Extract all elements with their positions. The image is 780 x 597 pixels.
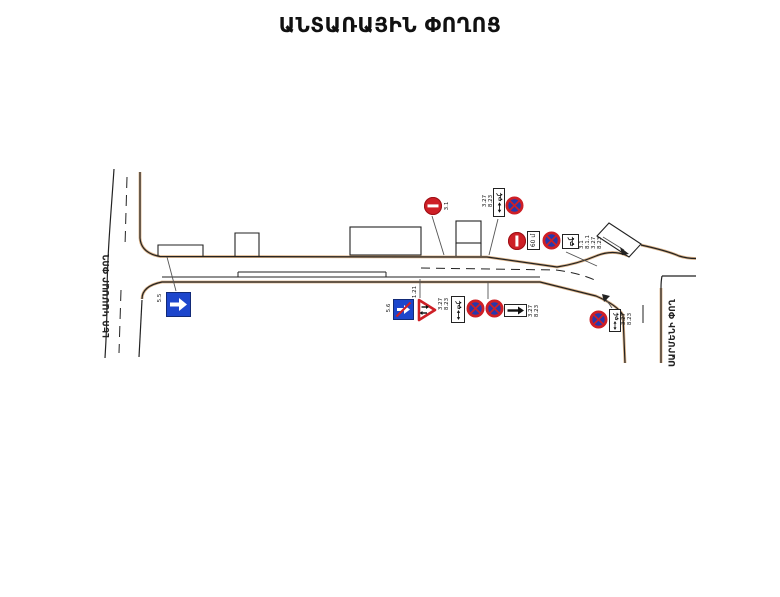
- zone-arrow-icon: [455, 310, 462, 320]
- tow-truck-icon: [494, 192, 504, 202]
- no-entry-sign-icon: [508, 232, 526, 250]
- end-of-one-way-sign-icon: [393, 299, 414, 320]
- one-way-arrow-sign-icon: [166, 292, 191, 317]
- two-way-traffic-warning-icon: [416, 297, 438, 327]
- no-stopping-sign-icon: [542, 231, 561, 254]
- road-lines: [105, 169, 696, 363]
- tow-truck-icon: [453, 300, 463, 310]
- road-edge-tint: [140, 172, 696, 363]
- zone-arrow-icon: [612, 321, 618, 330]
- no-stopping-sign-icon: [589, 310, 608, 333]
- distance-plate: 60 մ: [527, 231, 540, 250]
- no-entry-sign-icon: [424, 197, 442, 215]
- zone-arrow-icon: [496, 202, 503, 213]
- road-map-drawing: [0, 0, 780, 597]
- tow-truck-plate-icon: [451, 296, 465, 323]
- tow-truck-plate-icon: [562, 234, 579, 249]
- tow-truck-plate-icon: [493, 188, 505, 217]
- tow-truck-plate-icon: [609, 309, 621, 332]
- direction-arrow-plate-icon: [504, 304, 527, 317]
- no-stopping-sign-icon: [466, 299, 485, 322]
- tow-truck-icon: [565, 236, 576, 247]
- no-stopping-sign-icon: [505, 196, 524, 219]
- no-stopping-sign-icon: [485, 299, 504, 322]
- tow-truck-icon: [611, 312, 620, 321]
- street-scheme-page: ԱՆՏԱՌԱՅԻՆ ՓՈՂՈՑ: [0, 0, 780, 597]
